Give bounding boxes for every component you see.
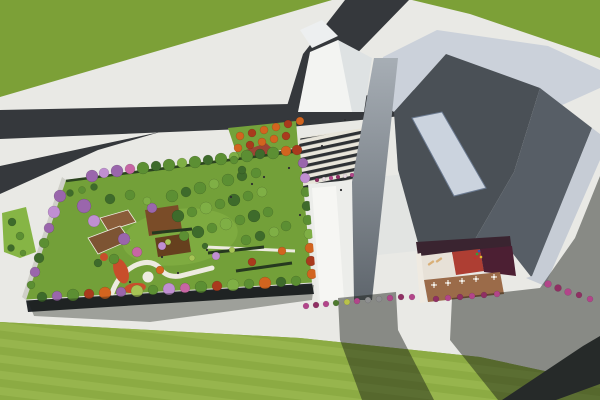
tree: [8, 218, 16, 226]
tree: [94, 259, 102, 267]
tree: [118, 233, 130, 245]
tree: [189, 255, 195, 261]
tree: [272, 123, 280, 131]
person-dot: [251, 183, 253, 185]
shrub: [494, 291, 500, 297]
playground-element: [480, 256, 483, 259]
render-canvas: [0, 0, 600, 400]
tree: [255, 149, 265, 159]
tree: [248, 210, 260, 222]
tree: [227, 279, 239, 291]
shrub: [333, 300, 339, 306]
tree: [230, 156, 238, 164]
person-dot: [321, 145, 323, 147]
tree: [270, 135, 278, 143]
courtyard-red-floor: [452, 249, 484, 275]
table: [475, 278, 478, 281]
chair: [493, 279, 494, 280]
person-dot: [177, 272, 179, 274]
tree: [255, 231, 265, 241]
courtyard-white-floor: [420, 252, 456, 280]
person-dot: [263, 176, 265, 178]
tree: [109, 254, 119, 264]
chair: [433, 287, 434, 288]
chair: [433, 282, 434, 283]
chair: [461, 283, 462, 284]
shrub: [376, 296, 382, 302]
tree: [281, 221, 291, 231]
shrub: [343, 174, 347, 178]
tree: [172, 210, 184, 222]
shrub: [565, 289, 572, 296]
tree: [179, 231, 189, 241]
tree: [260, 126, 268, 134]
tree: [16, 232, 24, 240]
tree: [202, 243, 208, 249]
tree: [88, 215, 100, 227]
tree: [91, 184, 98, 191]
table: [433, 284, 436, 287]
chair: [436, 284, 437, 285]
tree: [48, 206, 60, 218]
person-dot: [161, 256, 163, 258]
tree: [263, 207, 273, 217]
shrub: [545, 281, 552, 288]
flowerbed-red: [100, 253, 108, 261]
tree: [79, 187, 86, 194]
tree: [99, 168, 109, 178]
person-dot: [129, 281, 131, 283]
tree: [238, 166, 246, 174]
table: [447, 282, 450, 285]
chair: [473, 278, 474, 279]
tree: [132, 247, 142, 257]
tree: [180, 283, 190, 293]
tree: [215, 153, 227, 165]
shrub: [481, 292, 487, 298]
tree: [39, 238, 49, 248]
chair: [431, 284, 432, 285]
tree: [86, 170, 98, 182]
tree: [243, 191, 253, 201]
tree: [292, 145, 302, 155]
tree: [236, 132, 244, 140]
tree: [27, 281, 35, 289]
shrub: [344, 299, 350, 305]
tree: [291, 276, 301, 286]
person-dot: [230, 196, 232, 198]
tree: [220, 218, 232, 230]
tree: [203, 155, 213, 165]
shrub: [322, 177, 326, 181]
tree: [246, 141, 254, 149]
tree: [30, 267, 40, 277]
tree: [228, 194, 240, 206]
shrub: [315, 178, 319, 182]
table: [493, 276, 496, 279]
tree: [248, 129, 256, 137]
shrub: [387, 295, 393, 301]
chair: [450, 282, 451, 283]
tree: [143, 197, 151, 205]
tree: [235, 215, 245, 225]
chair: [464, 280, 465, 281]
tree: [67, 190, 74, 197]
shrub: [336, 175, 340, 179]
shrub: [469, 293, 475, 299]
shrub: [354, 298, 360, 304]
person-dot: [299, 214, 301, 216]
chair: [475, 276, 476, 277]
courtyard-maroon-floor: [480, 246, 516, 276]
tree: [241, 235, 251, 245]
tree: [158, 242, 166, 250]
chair: [447, 280, 448, 281]
tree: [137, 162, 149, 174]
shrub: [329, 176, 333, 180]
tree: [276, 277, 286, 287]
tree: [148, 285, 158, 295]
shrub: [313, 302, 319, 308]
tree: [200, 202, 212, 214]
tree: [166, 190, 178, 202]
tree: [44, 223, 54, 233]
tree: [248, 258, 256, 266]
tree: [181, 187, 191, 197]
tree: [267, 147, 279, 159]
chair: [491, 276, 492, 277]
tree: [281, 146, 291, 156]
person-dot: [288, 167, 290, 169]
tree: [234, 144, 242, 152]
chair: [493, 274, 494, 275]
person-dot: [344, 119, 346, 121]
shrub: [445, 295, 451, 301]
chair: [461, 278, 462, 279]
tree: [257, 187, 267, 197]
tree: [229, 247, 235, 253]
playground-element: [476, 253, 479, 256]
tree: [34, 253, 44, 263]
shrub: [323, 301, 329, 307]
chair: [496, 276, 497, 277]
tree: [177, 158, 187, 168]
tree: [125, 190, 135, 200]
shrub: [398, 294, 404, 300]
tree: [194, 182, 206, 194]
tree: [222, 174, 234, 186]
tree: [187, 207, 197, 217]
tree: [251, 168, 261, 178]
tree: [278, 247, 286, 255]
tree: [192, 226, 204, 238]
playground-element: [474, 257, 477, 260]
shrub: [409, 294, 415, 300]
tree: [165, 239, 171, 245]
tree: [151, 161, 161, 171]
shrub: [457, 294, 463, 300]
tree: [209, 179, 219, 189]
tree: [258, 138, 266, 146]
tree: [269, 227, 279, 237]
tree: [125, 164, 135, 174]
chair: [445, 282, 446, 283]
shrub: [303, 303, 309, 309]
table: [461, 280, 464, 283]
tree: [8, 245, 15, 252]
shrub: [587, 296, 593, 302]
shrub: [555, 285, 562, 292]
shrub: [350, 173, 354, 177]
tree: [77, 199, 91, 213]
tree: [156, 266, 164, 274]
tree: [282, 132, 290, 140]
tree: [207, 223, 217, 233]
chair: [447, 285, 448, 286]
tree: [296, 117, 304, 125]
tree: [111, 165, 123, 177]
tree: [259, 277, 271, 289]
person-dot: [340, 189, 342, 191]
tree: [300, 173, 310, 183]
shrub: [576, 292, 582, 298]
tree: [284, 120, 292, 128]
chair: [478, 278, 479, 279]
tree: [116, 287, 126, 297]
shrub: [433, 296, 439, 302]
chair: [459, 280, 460, 281]
tree: [241, 150, 253, 162]
shrub: [365, 297, 371, 303]
tree: [189, 156, 201, 168]
tree: [20, 250, 26, 256]
person-dot: [206, 249, 208, 251]
tree: [215, 199, 225, 209]
tree: [105, 194, 115, 204]
chair: [475, 281, 476, 282]
tree: [244, 279, 254, 289]
garden-path-node: [143, 272, 154, 283]
tree: [54, 190, 66, 202]
playground-element: [478, 250, 481, 253]
tree: [212, 252, 220, 260]
tree: [212, 281, 222, 291]
tree: [298, 158, 308, 168]
tree: [163, 159, 175, 171]
